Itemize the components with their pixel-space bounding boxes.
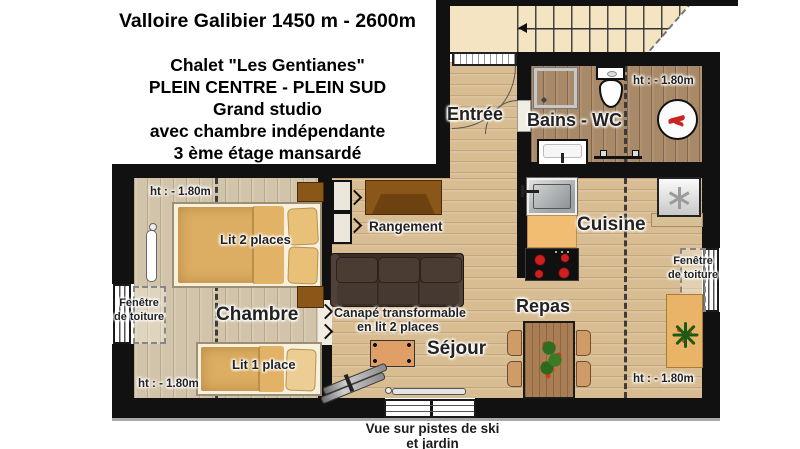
height-note-bedroom-bottom: ht : - 1.80m bbox=[138, 378, 199, 390]
towel-rail-post bbox=[632, 150, 639, 157]
radiator-knob bbox=[149, 223, 157, 231]
snowflake-icon bbox=[667, 186, 691, 210]
dining-chair bbox=[507, 330, 522, 356]
wall-left-upper bbox=[112, 164, 134, 284]
stairs bbox=[517, 5, 689, 52]
wardrobe-front bbox=[372, 194, 435, 214]
height-note-repas: ht : - 1.80m bbox=[633, 373, 694, 385]
shower bbox=[534, 68, 577, 108]
wall-bottom-right bbox=[475, 398, 720, 418]
towel-rail-post bbox=[600, 150, 607, 157]
nightstand bbox=[297, 286, 324, 308]
wall-main-top bbox=[112, 164, 450, 178]
dining-chair bbox=[576, 361, 591, 387]
height-note-bath: ht : - 1.80m bbox=[633, 75, 694, 87]
view-label: Vue sur pistes de ski et jardin bbox=[360, 421, 505, 449]
wall-right-lower bbox=[702, 312, 720, 418]
title-line: Chalet "Les Gentianes" bbox=[95, 54, 440, 76]
kitchen-sink-basin bbox=[533, 184, 571, 209]
ceiling-height-line-right bbox=[624, 178, 627, 398]
sofa-label: Canapé transformable en lit 2 places bbox=[334, 306, 462, 334]
kitchen-sink bbox=[527, 178, 577, 215]
room-label-entree: Entrée bbox=[447, 104, 503, 125]
sofa-cushion bbox=[336, 257, 378, 283]
title-line: Valloire Galibier 1450 m - 2600m bbox=[95, 10, 440, 33]
room-label-cuisine: Cuisine bbox=[577, 214, 646, 236]
washer-logo-icon bbox=[673, 119, 685, 127]
title-line: 3 ème étage mansardé bbox=[95, 142, 440, 164]
wall-top-bar bbox=[440, 0, 738, 6]
ski-pole-icon bbox=[392, 388, 466, 395]
nightstand bbox=[297, 182, 324, 202]
roof-window-left-label-line2: de toiture bbox=[114, 310, 164, 324]
sofa-seat bbox=[337, 283, 459, 304]
view-label-line2: et jardin bbox=[360, 436, 505, 449]
room-label-sejour: Séjour bbox=[427, 338, 486, 360]
kitchen-faucet-icon bbox=[521, 185, 524, 197]
room-label-rangement: Rangement bbox=[369, 219, 443, 234]
radiator bbox=[146, 230, 157, 282]
bed-double-label: Lit 2 places bbox=[220, 232, 291, 247]
wall-right-upper bbox=[702, 52, 720, 248]
dining-chair bbox=[576, 330, 591, 356]
view-label-line1: Vue sur pistes de ski bbox=[360, 421, 505, 436]
floor-plan: Valloire Galibier 1450 m - 2600m Chalet … bbox=[0, 0, 800, 449]
ceiling-height-line-bath bbox=[624, 66, 627, 162]
ski-pole-basket bbox=[385, 387, 392, 394]
sofa-cushion bbox=[378, 257, 420, 283]
sofa-label-line1: Canapé transformable bbox=[334, 306, 462, 320]
room-label-chambre: Chambre bbox=[216, 304, 298, 326]
entrance-door bbox=[452, 52, 517, 66]
stove bbox=[525, 248, 579, 281]
wall-bottom-left bbox=[112, 398, 385, 418]
stairs-landing bbox=[450, 6, 517, 54]
wall-bath-top bbox=[517, 52, 720, 66]
roof-window-right-label-line1: Fenêtre bbox=[668, 254, 718, 268]
roof-window-right-label: Fenêtre de toiture bbox=[668, 254, 718, 282]
room-label-repas: Repas bbox=[516, 296, 570, 317]
fridge bbox=[657, 177, 701, 217]
washing-machine bbox=[657, 99, 698, 140]
toilet-tank bbox=[596, 66, 625, 80]
coffee-table bbox=[370, 340, 415, 367]
stairs-arrow-icon bbox=[518, 23, 527, 33]
room-label-bains: Bains - WC bbox=[527, 110, 622, 131]
sofa bbox=[330, 253, 464, 307]
height-note-bedroom-top: ht : - 1.80m bbox=[150, 186, 211, 198]
bath-faucet-icon bbox=[561, 153, 564, 163]
wardrobe bbox=[365, 180, 442, 215]
bath-sink bbox=[537, 139, 588, 166]
sofa-cushion bbox=[420, 257, 462, 283]
roof-window-right-label-line2: de toiture bbox=[668, 268, 718, 282]
roof-window-left-label-line1: Fenêtre bbox=[114, 296, 164, 310]
bed-single-label: Lit 1 place bbox=[232, 357, 296, 372]
wall-entry-bath-lower bbox=[517, 132, 531, 164]
title-line: PLEIN CENTRE - PLEIN SUD bbox=[95, 76, 440, 98]
kitchen-counter bbox=[527, 215, 577, 248]
skis-icon bbox=[323, 366, 385, 400]
plant-icon bbox=[671, 321, 699, 349]
toilet-button bbox=[607, 71, 617, 77]
dining-chair bbox=[507, 361, 522, 387]
balcony-window bbox=[384, 399, 476, 418]
title-line: avec chambre indépendante bbox=[95, 120, 440, 142]
double-bed-pillow bbox=[287, 207, 319, 246]
flowers-icon bbox=[535, 336, 567, 382]
title-line: Grand studio bbox=[95, 98, 440, 120]
title-block: Valloire Galibier 1450 m - 2600m Chalet … bbox=[95, 10, 440, 164]
double-bed-pillow bbox=[287, 246, 318, 284]
sofa-label-line2: en lit 2 places bbox=[334, 320, 462, 334]
roof-window-left-label: Fenêtre de toiture bbox=[114, 296, 164, 324]
